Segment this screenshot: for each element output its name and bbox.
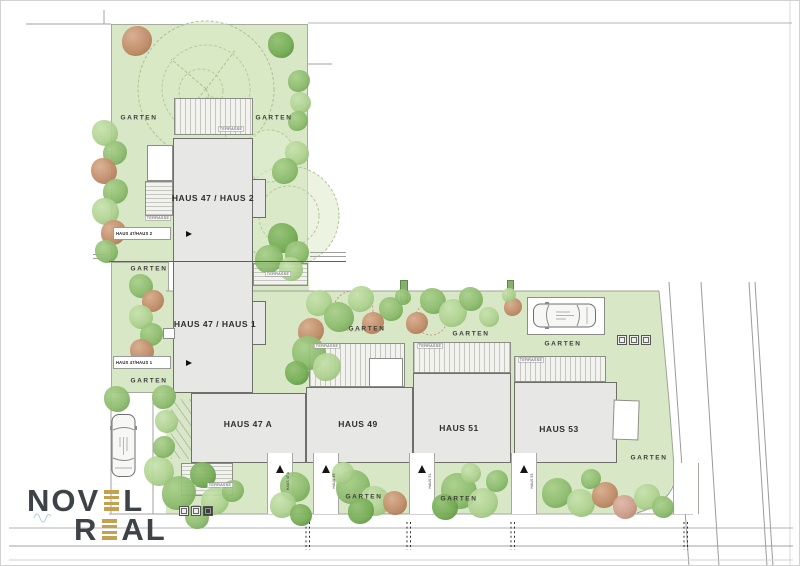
house-label: HAUS 49 [338,419,377,429]
terrace-haus49-notch [369,358,403,387]
logo-word-real: R AL [74,517,167,542]
garten-label: GARTEN [255,115,292,122]
tree-bush [395,289,411,305]
building-haus53 [514,382,617,463]
tree-bush [383,491,407,515]
building-haus47 [173,138,253,393]
waste-bin [641,335,651,345]
tree-bush [285,361,309,385]
terrasse-label: TERRASSE [265,272,291,277]
house-label: HAUS 47 / HAUS 2 [172,193,254,203]
garten-label: GARTEN [544,341,581,348]
entrance-marker-label: HAUS 51 [428,474,432,489]
site-plan-canvas: GARTENGARTENGARTENGARTENGARTENGARTENGART… [0,0,800,566]
tree-bush [461,463,481,483]
arrow-right-icon [186,231,192,237]
logo-e-bars [104,490,119,511]
entrance-sign-label: HAUS 47/HAUS 1 [116,360,152,365]
garten-label: GARTEN [345,494,382,501]
tree-bush [459,287,483,311]
property-boundary-red-line [109,261,346,262]
tree-bush [290,504,312,526]
terrasse-label: TERRASSE [218,127,244,132]
car-top-view [532,302,598,335]
tree-bush [268,32,294,58]
tree-bush [479,307,499,327]
logo-letters: R [74,517,98,542]
tree-bush [95,240,118,263]
entrance-arrow-icon [322,465,330,473]
terrasse-label: TERRASSE [314,344,340,349]
house-label: HAUS 53 [539,424,578,434]
terrasse-label: TERRASSE [207,483,233,488]
entrance-sign: HAUS 47/HAUS 1 [113,356,171,369]
arrow-right-icon [186,360,192,366]
building-haus51 [413,373,511,463]
house-label: HAUS 51 [439,423,478,433]
logo-letters: L [123,488,144,513]
tree-bush [290,92,311,113]
tree-bush [104,386,130,412]
entrance-sign-label: HAUS 47/HAUS 2 [116,231,152,236]
entrance-marker-label: HAUS 49 [332,474,336,489]
shed-haus53 [612,400,639,441]
entry-path [673,463,699,514]
terrasse-label: TERRASSE [518,358,544,363]
entrance-marker-label: HAUS 47 A [286,472,290,490]
garten-label: GARTEN [130,266,167,273]
waste-bin [203,506,213,516]
boundary-annotation [310,256,346,257]
entrance-sign: HAUS 47/HAUS 2 [113,227,171,240]
annex-haus47-west [147,145,173,181]
watermark-squiggle [33,509,53,523]
entrance-arrow-icon [276,465,284,473]
boundary-annotation [310,252,346,253]
terrasse-label: TERRASSE [145,216,171,221]
house-label: HAUS 47 A [224,419,273,429]
stairs-haus47-west [145,181,173,216]
logo-e-bars [102,519,117,540]
waste-bin [629,335,639,345]
garten-label: GARTEN [348,326,385,333]
waste-bin [617,335,627,345]
waste-bin [191,506,201,516]
logo-letters: AL [121,517,166,542]
waste-bin [179,506,189,516]
entrance-arrow-icon [418,465,426,473]
tree-bush [155,410,178,433]
annex-haus47-small [163,328,175,339]
garten-label: GARTEN [440,496,477,503]
terrasse-label: TERRASSE [417,344,443,349]
garten-label: GARTEN [630,455,667,462]
garten-label: GARTEN [452,331,489,338]
tree-bush [652,496,674,518]
garten-label: GARTEN [130,378,167,385]
building-haus47-bay-upper [252,179,266,218]
entrance-arrow-icon [520,465,528,473]
garten-label: GARTEN [120,115,157,122]
entrance-marker-label: HAUS 53 [530,474,534,489]
house-label: HAUS 47 / HAUS 1 [174,319,256,329]
tree-bush [567,489,595,517]
